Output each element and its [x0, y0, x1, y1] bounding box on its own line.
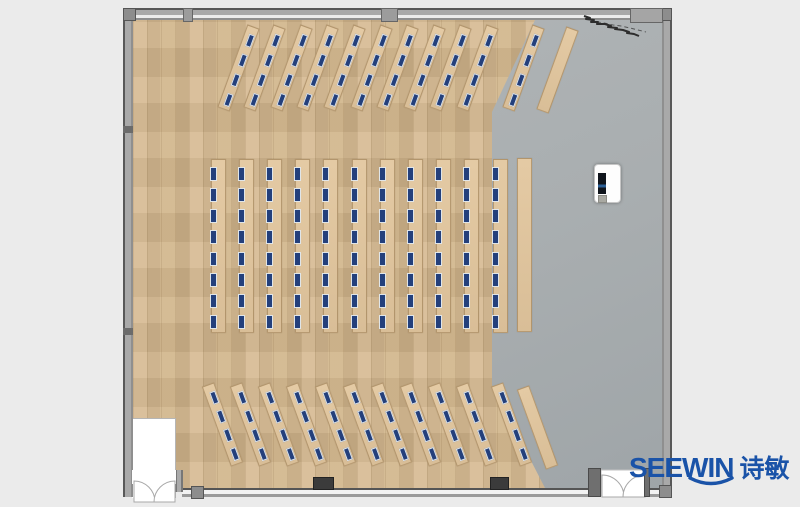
seat-marker: [382, 93, 392, 107]
seat-marker: [238, 209, 245, 223]
seat-marker: [351, 315, 358, 329]
seat-marker: [435, 167, 442, 181]
desk-row[interactable]: [502, 24, 544, 111]
seat-marker: [529, 33, 539, 47]
desk-row[interactable]: [408, 159, 423, 333]
seat-marker: [355, 93, 365, 107]
seat-marker: [328, 409, 338, 423]
seat-marker: [477, 428, 487, 442]
seat-marker: [257, 447, 267, 461]
seat-marker: [317, 53, 327, 67]
seat-marker: [492, 230, 499, 244]
seat-marker: [435, 209, 442, 223]
lectern[interactable]: [594, 164, 621, 203]
seat-marker: [322, 167, 329, 181]
seat-marker: [351, 230, 358, 244]
seat-marker: [237, 53, 247, 67]
seat-marker: [342, 447, 352, 461]
seat-marker: [294, 315, 301, 329]
seat-marker: [350, 33, 360, 47]
seat-marker: [322, 188, 329, 202]
seat-marker: [378, 390, 388, 404]
seat-marker: [238, 273, 245, 287]
entry-vestibule: [132, 418, 176, 498]
wall-corner-top-left: [123, 8, 136, 21]
seat-marker: [215, 409, 225, 423]
seat-marker: [322, 252, 329, 266]
seat-marker: [256, 73, 266, 87]
seat-marker: [238, 294, 245, 308]
seat-marker: [511, 428, 521, 442]
seat-marker: [450, 53, 460, 67]
seat-marker: [351, 167, 358, 181]
wall-joint-tick: [123, 126, 133, 133]
seat-marker: [435, 93, 445, 107]
seewin-logo: SEEWIN诗敏: [629, 449, 789, 485]
wall-corner-bottom-right: [659, 485, 672, 498]
seat-marker: [407, 252, 414, 266]
seat-marker: [379, 230, 386, 244]
seat-marker: [210, 294, 217, 308]
seat-marker: [309, 73, 319, 87]
seat-marker: [492, 167, 499, 181]
seat-marker: [435, 294, 442, 308]
seat-marker: [210, 315, 217, 329]
seat-marker: [351, 188, 358, 202]
seat-marker: [522, 53, 532, 67]
seat-marker: [294, 209, 301, 223]
seat-marker: [265, 390, 275, 404]
seat-marker: [463, 390, 473, 404]
seat-marker: [463, 294, 470, 308]
seat-marker: [435, 315, 442, 329]
wall-pilaster: [630, 8, 663, 23]
seat-marker: [463, 252, 470, 266]
logo-smile-arc: [687, 476, 735, 489]
seat-marker: [249, 93, 259, 107]
seat-marker: [448, 428, 458, 442]
seat-marker: [476, 53, 486, 67]
seat-marker: [229, 447, 239, 461]
seat-marker: [222, 93, 232, 107]
seat-marker: [455, 447, 465, 461]
seat-marker: [237, 390, 247, 404]
seat-marker: [266, 230, 273, 244]
seat-marker: [463, 315, 470, 329]
seat-marker: [427, 447, 437, 461]
desk-row[interactable]: [436, 159, 451, 333]
wall-corner-bottom-left: [191, 486, 204, 499]
seat-marker: [423, 53, 433, 67]
seat-marker: [297, 33, 307, 47]
seat-marker: [222, 428, 232, 442]
seat-marker: [210, 167, 217, 181]
seat-marker: [266, 273, 273, 287]
seat-marker: [314, 447, 324, 461]
seat-marker: [210, 273, 217, 287]
seat-marker: [463, 273, 470, 287]
seat-marker: [351, 294, 358, 308]
seat-marker: [370, 53, 380, 67]
door-jamb-left: [588, 468, 601, 497]
desk-row[interactable]: [239, 159, 254, 333]
seat-marker: [351, 209, 358, 223]
seat-marker: [272, 409, 282, 423]
seat-marker: [407, 294, 414, 308]
seat-marker: [469, 73, 479, 87]
seat-marker: [238, 188, 245, 202]
seat-marker: [294, 230, 301, 244]
seat-marker: [322, 390, 332, 404]
seat-marker: [351, 273, 358, 287]
seat-marker: [420, 428, 430, 442]
desk-row[interactable]: [493, 159, 508, 333]
seat-marker: [379, 273, 386, 287]
seat-marker: [462, 93, 472, 107]
seat-marker: [266, 252, 273, 266]
seat-marker: [492, 273, 499, 287]
seat-marker: [435, 252, 442, 266]
seat-marker: [266, 188, 273, 202]
seat-marker: [343, 53, 353, 67]
wall-stub-vestibule: [175, 470, 183, 492]
seat-marker: [379, 167, 386, 181]
seat-marker: [244, 33, 254, 47]
seat-marker: [238, 252, 245, 266]
seat-marker: [507, 93, 517, 107]
seat-marker: [377, 33, 387, 47]
seat-marker: [322, 209, 329, 223]
seat-marker: [379, 252, 386, 266]
wall-unit-block: [313, 477, 334, 490]
desk-row[interactable]: [295, 159, 310, 333]
seat-marker: [463, 209, 470, 223]
seat-marker: [266, 315, 273, 329]
wall-pilaster: [381, 8, 398, 22]
desk-row[interactable]: [211, 159, 226, 333]
seat-marker: [407, 188, 414, 202]
wall-pilaster: [183, 8, 193, 22]
seat-marker: [210, 209, 217, 223]
seat-marker: [322, 273, 329, 287]
seat-marker: [263, 53, 273, 67]
seat-marker: [442, 409, 452, 423]
seat-marker: [336, 73, 346, 87]
seat-marker: [518, 447, 528, 461]
seat-marker: [407, 209, 414, 223]
seat-marker: [463, 188, 470, 202]
seat-marker: [379, 209, 386, 223]
seat-marker: [210, 230, 217, 244]
seat-marker: [294, 167, 301, 181]
seat-marker: [406, 390, 416, 404]
lectern-screen: [598, 173, 606, 194]
seat-marker: [322, 294, 329, 308]
seat-marker: [407, 273, 414, 287]
seat-marker: [290, 53, 300, 67]
seat-marker: [293, 390, 303, 404]
seat-marker: [497, 390, 507, 404]
seat-marker: [385, 409, 395, 423]
seat-marker: [435, 230, 442, 244]
seat-marker: [324, 33, 334, 47]
seat-marker: [294, 294, 301, 308]
seat-marker: [416, 73, 426, 87]
wall-left: [123, 8, 133, 497]
seat-marker: [483, 33, 493, 47]
seat-marker: [238, 167, 245, 181]
seat-marker: [492, 252, 499, 266]
seat-marker: [266, 167, 273, 181]
seat-marker: [322, 230, 329, 244]
console-table[interactable]: [517, 158, 532, 332]
seat-marker: [504, 409, 514, 423]
seat-marker: [230, 73, 240, 87]
seat-marker: [243, 409, 253, 423]
seat-marker: [266, 209, 273, 223]
seat-marker: [407, 315, 414, 329]
seat-marker: [357, 409, 367, 423]
wall-joint-tick: [123, 328, 133, 335]
seat-marker: [407, 230, 414, 244]
seat-marker: [335, 428, 345, 442]
seat-marker: [492, 294, 499, 308]
seat-marker: [407, 167, 414, 181]
seat-marker: [484, 447, 494, 461]
seat-marker: [279, 428, 289, 442]
seat-marker: [302, 93, 312, 107]
seat-marker: [396, 53, 406, 67]
seat-marker: [470, 409, 480, 423]
seat-marker: [351, 252, 358, 266]
seat-marker: [285, 447, 295, 461]
seat-marker: [399, 447, 409, 461]
seat-marker: [307, 428, 317, 442]
seat-marker: [322, 315, 329, 329]
seat-marker: [294, 252, 301, 266]
seat-marker: [210, 188, 217, 202]
seat-marker: [492, 188, 499, 202]
seat-marker: [463, 230, 470, 244]
desk-row[interactable]: [464, 159, 479, 333]
seat-marker: [276, 93, 286, 107]
seat-marker: [442, 73, 452, 87]
seat-marker: [379, 315, 386, 329]
seat-marker: [271, 33, 281, 47]
seat-marker: [294, 273, 301, 287]
desk-row[interactable]: [380, 159, 395, 333]
seat-marker: [463, 167, 470, 181]
seat-marker: [294, 188, 301, 202]
seat-marker: [430, 33, 440, 47]
seat-marker: [379, 188, 386, 202]
wall-right: [662, 8, 672, 497]
seat-marker: [250, 428, 260, 442]
desk-row[interactable]: [267, 159, 282, 333]
seat-marker: [266, 294, 273, 308]
furniture-layer: [0, 0, 800, 507]
seat-marker: [208, 390, 218, 404]
seat-marker: [492, 315, 499, 329]
wall-unit-block: [490, 477, 509, 490]
seat-marker: [404, 33, 414, 47]
seat-marker: [492, 209, 499, 223]
seat-marker: [238, 315, 245, 329]
seat-marker: [363, 73, 373, 87]
seat-marker: [364, 428, 374, 442]
lectern-control-pad: [598, 195, 607, 203]
wall-bottom-glazed: [182, 488, 601, 497]
seat-marker: [370, 447, 380, 461]
seat-marker: [435, 188, 442, 202]
seat-marker: [329, 93, 339, 107]
desk-row[interactable]: [323, 159, 338, 333]
seat-marker: [379, 294, 386, 308]
seat-marker: [238, 230, 245, 244]
seat-marker: [409, 93, 419, 107]
seat-marker: [300, 409, 310, 423]
console-table[interactable]: [536, 26, 578, 113]
seat-marker: [435, 273, 442, 287]
seat-marker: [457, 33, 467, 47]
logo-text-cn: 诗敏: [739, 454, 789, 483]
seat-marker: [283, 73, 293, 87]
seat-marker: [350, 390, 360, 404]
seat-marker: [389, 73, 399, 87]
seat-marker: [413, 409, 423, 423]
seat-marker: [515, 73, 525, 87]
seat-marker: [210, 252, 217, 266]
seat-marker: [392, 428, 402, 442]
floor-plan-canvas: SEEWIN诗敏: [0, 0, 800, 507]
desk-row[interactable]: [352, 159, 367, 333]
seat-marker: [435, 390, 445, 404]
